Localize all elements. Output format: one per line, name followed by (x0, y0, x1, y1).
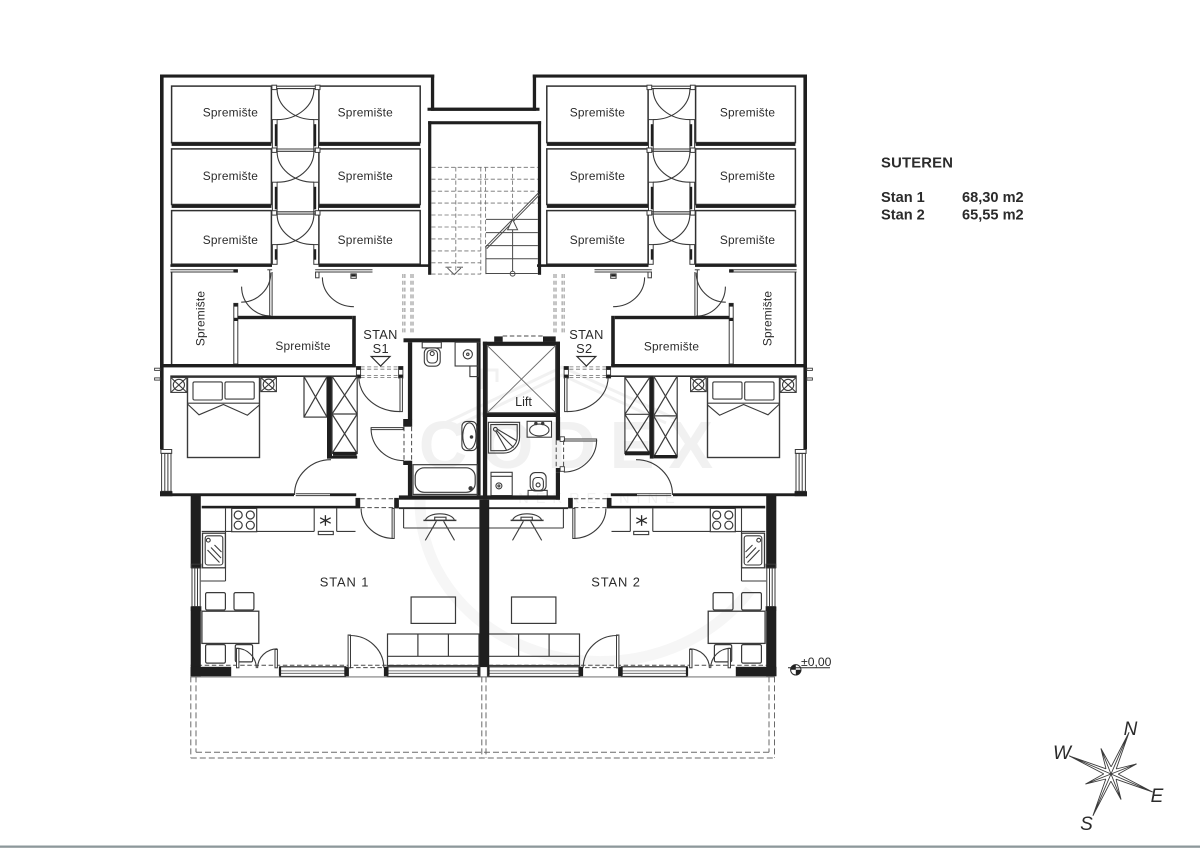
svg-text:Spremište: Spremište (194, 291, 208, 347)
svg-text:65,55 m2: 65,55 m2 (962, 208, 1024, 224)
svg-text:STAN 1: STAN 1 (320, 574, 370, 589)
svg-text:Spremište: Spremište (570, 106, 626, 120)
svg-text:STAN: STAN (363, 327, 397, 342)
svg-text:E: E (1151, 786, 1164, 807)
svg-text:Spremište: Spremište (720, 233, 776, 247)
svg-text:STAN: STAN (569, 327, 603, 342)
svg-text:Spremište: Spremište (203, 169, 259, 183)
svg-text:Spremište: Spremište (203, 233, 259, 247)
svg-text:Spremište: Spremište (338, 106, 394, 120)
svg-text:Spremište: Spremište (338, 169, 394, 183)
svg-text:Stan 2: Stan 2 (881, 208, 925, 224)
svg-text:Spremište: Spremište (570, 169, 626, 183)
svg-text:STAN 2: STAN 2 (591, 574, 641, 589)
svg-text:±0,00: ±0,00 (801, 655, 832, 669)
svg-text:SUTEREN: SUTEREN (881, 156, 953, 172)
svg-text:W: W (1053, 743, 1073, 764)
svg-text:Spremište: Spremište (338, 233, 394, 247)
svg-text:Lift: Lift (515, 395, 532, 409)
svg-text:S1: S1 (373, 341, 389, 356)
svg-text:Spremište: Spremište (275, 339, 331, 353)
svg-text:S2: S2 (576, 341, 592, 356)
svg-text:Stan 1: Stan 1 (881, 190, 925, 206)
svg-text:68,30 m2: 68,30 m2 (962, 190, 1024, 206)
svg-text:N: N (1124, 719, 1138, 740)
svg-text:S: S (1080, 814, 1093, 835)
svg-text:Spremište: Spremište (720, 106, 776, 120)
svg-text:Spremište: Spremište (644, 340, 700, 354)
svg-text:Spremište: Spremište (761, 291, 775, 347)
svg-text:Spremište: Spremište (720, 169, 776, 183)
svg-text:Spremište: Spremište (203, 106, 259, 120)
svg-text:Spremište: Spremište (570, 233, 626, 247)
